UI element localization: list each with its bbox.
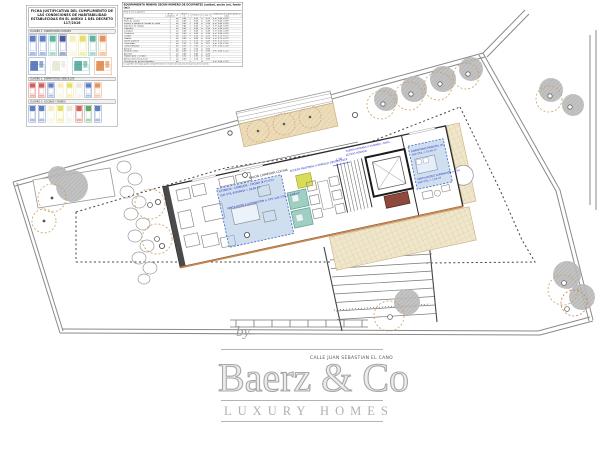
watermark-rule-bottom (221, 421, 383, 422)
watermark-tagline: LUXURY HOMES (224, 404, 386, 419)
legend-title: FICHA JUSTIFICATIVA DEL CUMPLIMIENTO DE … (29, 7, 116, 27)
equipment-table: Nº de unidadesudAncho mxFondo m=Sup. m²C… (123, 13, 241, 62)
furniture-glyph (59, 34, 67, 55)
furniture-glyph (29, 57, 46, 74)
legend-glyph-row (29, 34, 116, 55)
watermark: by CALLE JUAN SEBASTIAN EL CANO Baerz & … (218, 322, 386, 422)
furniture-glyph (75, 105, 82, 122)
furniture-glyph (69, 34, 77, 55)
furniture-glyph (38, 105, 45, 122)
legend-section-bar: CUADRO 3. COCINAS Y BAÑOS (29, 99, 116, 103)
watermark-rule-mid (221, 400, 383, 401)
table-footnote: La superficie de trabajo puede compartim… (123, 63, 241, 66)
furniture-glyph (66, 105, 73, 122)
habitability-legend-panel: FICHA JUSTIFICATIVA DEL CUMPLIMIENTO DE … (26, 5, 118, 126)
table-title: EQUIPAMIENTO MÍNIMO SEGÚN NÚMERO DE OCUP… (123, 3, 241, 10)
furniture-glyph (47, 105, 54, 122)
furniture-glyph (66, 82, 73, 97)
furniture-glyph (57, 105, 64, 122)
furniture-glyph (85, 82, 92, 97)
legend-section-bar: CUADRO 2. DORMITORIOS SENCILLOS (29, 77, 116, 81)
furniture-glyph (79, 34, 87, 55)
legend-glyph-row (29, 57, 116, 74)
furniture-glyph (99, 34, 107, 55)
furniture-glyph (51, 57, 68, 74)
legend-glyph-row (29, 82, 116, 97)
watermark-brand: Baerz & Co (218, 356, 386, 400)
furniture-glyph (29, 82, 36, 97)
watermark-by: by (236, 324, 250, 341)
equipment-table-panel: EQUIPAMIENTO MÍNIMO SEGÚN NÚMERO DE OCUP… (122, 2, 243, 67)
furniture-glyph (89, 34, 97, 55)
furniture-glyph (75, 82, 82, 97)
furniture-glyph (47, 82, 54, 97)
furniture-glyph (85, 105, 92, 122)
furniture-glyph (38, 82, 45, 97)
street-address: CALLE JUAN SEBASTIAN EL CANO (310, 356, 393, 361)
furniture-glyph (49, 34, 57, 55)
furniture-glyph (73, 57, 90, 74)
floorplan-sheet: SALON COMEDOR COCINA ESTANCIA - COMEDOR … (0, 0, 600, 451)
furniture-glyph (95, 57, 112, 74)
furniture-glyph (39, 34, 47, 55)
legend-glyph-row (29, 105, 116, 122)
legend-section-bar: CUADRO 1. DORMITORIOS DOBLES (29, 29, 116, 33)
furniture-glyph (94, 82, 101, 97)
furniture-glyph (29, 105, 36, 122)
watermark-rule-top (221, 349, 383, 350)
furniture-glyph (29, 34, 37, 55)
furniture-glyph (57, 82, 64, 97)
bushes (117, 161, 157, 284)
stair-core (365, 149, 413, 197)
furniture-glyph (94, 105, 101, 122)
